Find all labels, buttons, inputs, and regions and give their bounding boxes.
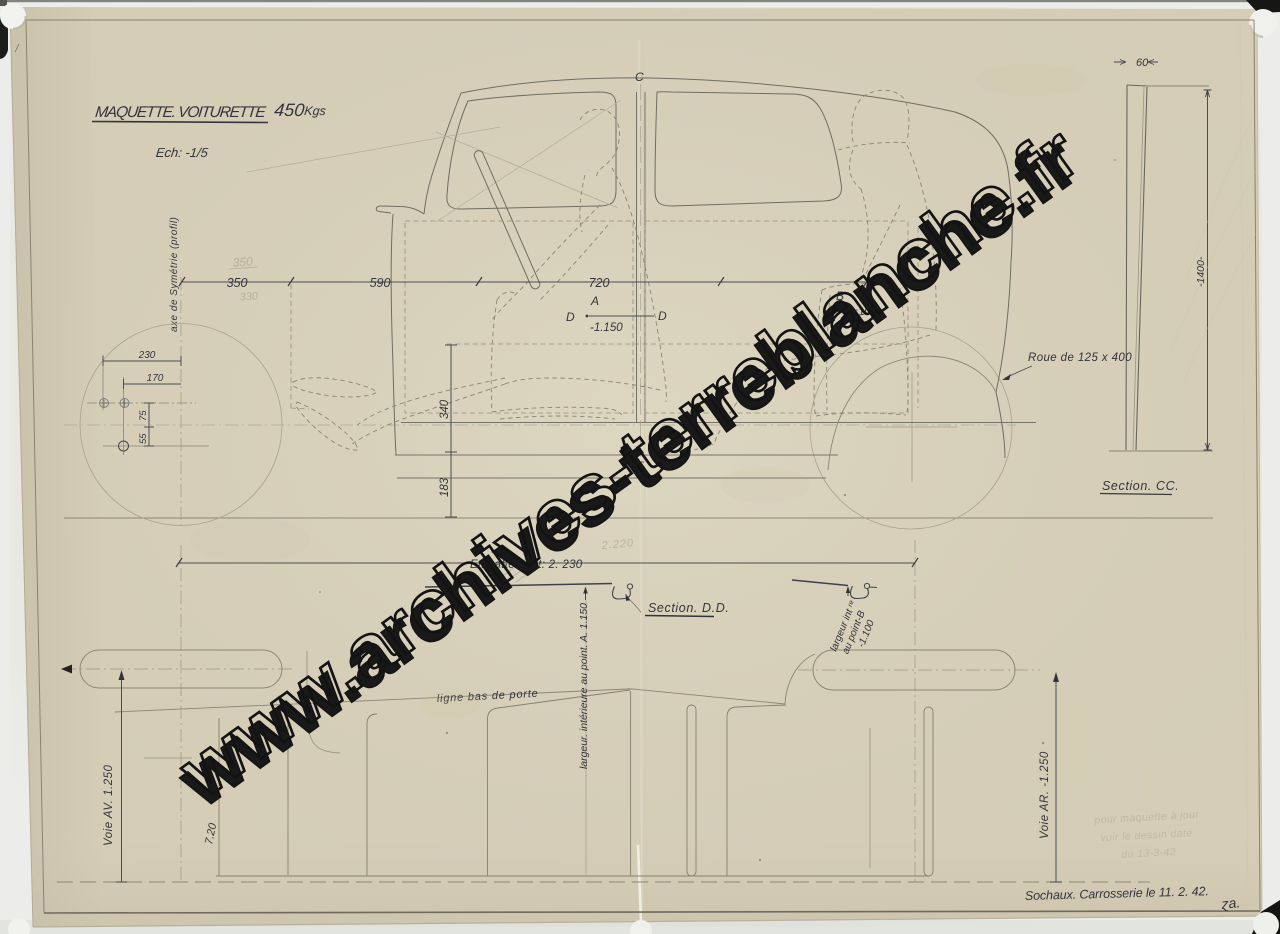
svg-text:Kgs: Kgs [304, 104, 327, 118]
svg-text:720: 720 [589, 276, 610, 290]
svg-text:183: 183 [439, 477, 451, 497]
svg-text:230: 230 [138, 350, 156, 361]
svg-text:75: 75 [138, 410, 149, 421]
svg-text:60: 60 [1136, 57, 1149, 69]
svg-text:55: 55 [138, 433, 149, 444]
svg-text:axe de Symétrie (profil): axe de Symétrie (profil) [169, 217, 180, 332]
svg-text:Section. D.D.: Section. D.D. [648, 601, 729, 615]
svg-text:largeur. intérieure au point.: largeur. intérieure au point. A. 1.150 [578, 603, 590, 769]
svg-text:590: 590 [370, 276, 391, 290]
svg-text:Roue de 125 x 400: Roue de 125 x 400 [1028, 352, 1132, 364]
svg-text:MAQUETTE. VOITURETTE: MAQUETTE. VOITURETTE [94, 104, 268, 121]
svg-text:350: 350 [227, 276, 248, 290]
svg-text:A: A [590, 294, 599, 308]
svg-text:Ech: -1/5: Ech: -1/5 [155, 145, 209, 160]
svg-text:340: 340 [439, 399, 451, 419]
svg-text:Voie AR. -1.250: Voie AR. -1.250 [1039, 751, 1051, 839]
svg-text:D: D [566, 310, 575, 324]
svg-text:330: 330 [239, 290, 259, 303]
svg-text:-1.150: -1.150 [590, 322, 623, 334]
svg-text:ɀa.: ɀa. [1220, 894, 1241, 912]
svg-text:170: 170 [147, 373, 164, 384]
svg-text:D: D [658, 309, 667, 323]
svg-text:C: C [635, 70, 644, 84]
svg-text:Voie AV. 1.250: Voie AV. 1.250 [103, 765, 115, 846]
svg-text:Section. CC.: Section. CC. [1102, 479, 1179, 493]
svg-text:450: 450 [273, 100, 305, 120]
